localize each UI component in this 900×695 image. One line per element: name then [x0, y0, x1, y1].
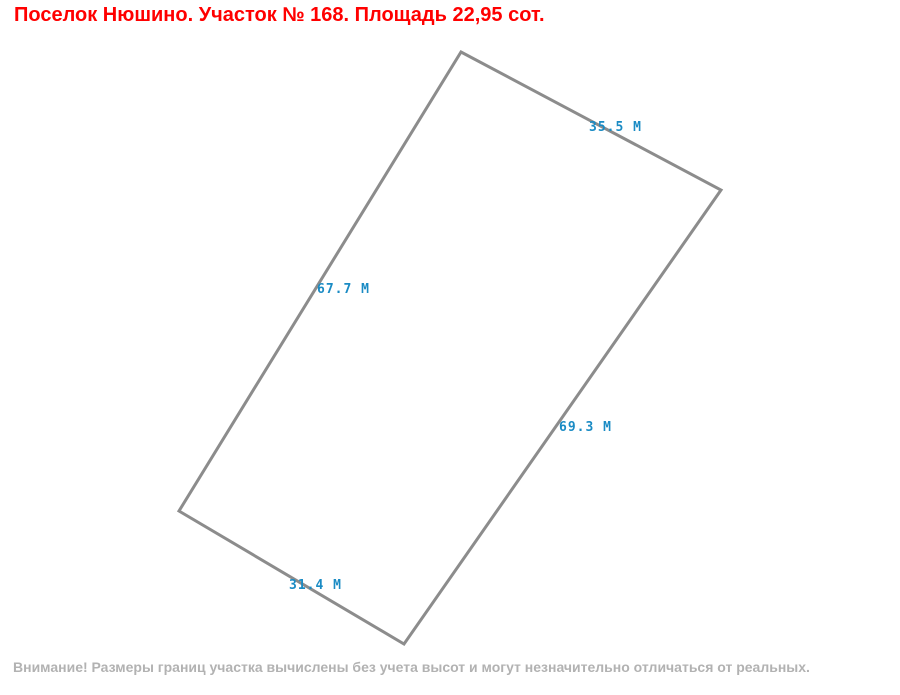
disclaimer-text: Внимание! Размеры границ участка вычисле…: [13, 659, 810, 675]
side-length-label-top: 35.5 М: [589, 120, 642, 135]
side-length-label-left: 67.7 М: [317, 282, 370, 297]
parcel-boundary-svg: [0, 0, 900, 695]
parcel-plan-page: Поселок Нюшино. Участок № 168. Площадь 2…: [0, 0, 900, 695]
side-length-label-bottom: 31.4 М: [289, 578, 342, 593]
parcel-boundary-polygon: [179, 52, 721, 644]
side-length-label-right: 69.3 М: [559, 420, 612, 435]
